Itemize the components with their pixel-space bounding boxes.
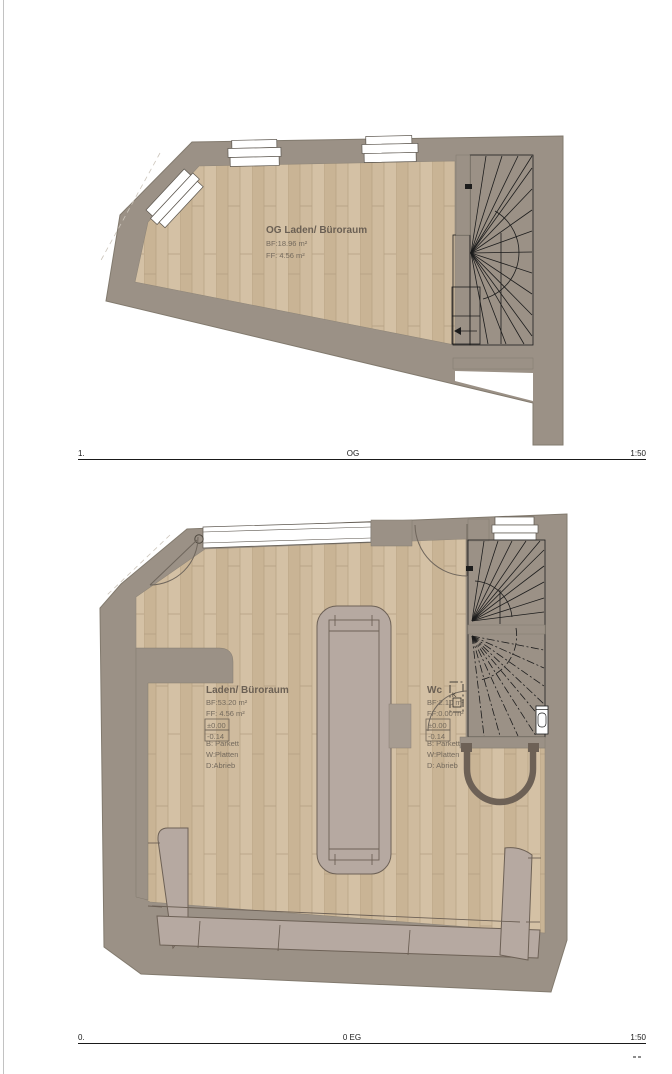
eg-scale-left: 0.: [78, 1033, 85, 1042]
eg-walkline-start-marker: [466, 566, 473, 571]
wc-bf: BF:2.10 m²: [427, 698, 465, 707]
og-walkline-start-marker: [465, 184, 472, 189]
wc-ceiling-finish: D: Abrieb: [427, 761, 458, 770]
og-window-1: [228, 139, 282, 166]
wc-floor-finish: B: Parkett: [427, 739, 461, 748]
eg-room-ff: FF: 4.56 m²: [206, 709, 245, 718]
wc-ff: FF:0.00 m²: [427, 709, 464, 718]
wc-level-upper: ±0.00: [428, 721, 447, 730]
eg-wall-pier: [371, 520, 412, 546]
eg-wall-pier-2: [468, 519, 489, 541]
og-floor-plan: OG Laden/ Büroraum BF:18.96 m² FF: 4.56 …: [100, 135, 563, 445]
og-window-2: [362, 135, 419, 162]
og-scale-bar: 1. OG 1:50: [78, 449, 647, 460]
eg-stair-k-note: K: [452, 692, 457, 699]
eg-room-ceiling-finish: D:Abrieb: [206, 761, 235, 770]
floor-plan-page: OG Laden/ Büroraum BF:18.96 m² FF: 4.56 …: [0, 0, 672, 1074]
og-room-ff: FF: 4.56 m²: [266, 251, 305, 260]
eg-scale-ratio: 1:50: [630, 1033, 646, 1042]
eg-room-title: Laden/ Büroraum: [206, 685, 289, 696]
eg-counter-side-block: [389, 704, 411, 748]
og-scale-left: 1.: [78, 449, 85, 458]
eg-room-level-upper: ±0.00: [207, 721, 226, 730]
og-room-title: OG Laden/ Büroraum: [266, 225, 367, 236]
eg-room-wall-finish: W:Platten: [206, 750, 238, 759]
eg-scale-title: 0 EG: [343, 1033, 361, 1042]
eg-floor-plan: Laden/ Büroraum BF:53.20 m² FF: 4.56 m² …: [100, 514, 567, 992]
eg-window-top-right: [492, 517, 538, 540]
page-artifact-mark: [633, 1056, 641, 1058]
floor-plan-drawing: OG Laden/ Büroraum BF:18.96 m² FF: 4.56 …: [0, 0, 672, 1074]
eg-stair-mid-wall: [468, 625, 545, 634]
og-scale-ratio: 1:50: [630, 449, 646, 458]
eg-door-hinge-dot: [195, 535, 203, 543]
og-room-bf: BF:18.96 m²: [266, 239, 308, 248]
eg-room-bf: BF:53.20 m²: [206, 698, 248, 707]
og-wall-below-stair: [453, 358, 533, 369]
wc-title: Wc: [427, 685, 442, 696]
wc-toilet-icon: [536, 706, 548, 734]
og-stair-wall-strip: [456, 155, 470, 235]
eg-room-floor-finish: B: Parkett: [206, 739, 240, 748]
eg-scale-bar: 0. 0 EG 1:50: [78, 1033, 647, 1044]
wc-wall-finish: W:Platten: [427, 750, 459, 759]
og-scale-title: OG: [347, 449, 359, 458]
